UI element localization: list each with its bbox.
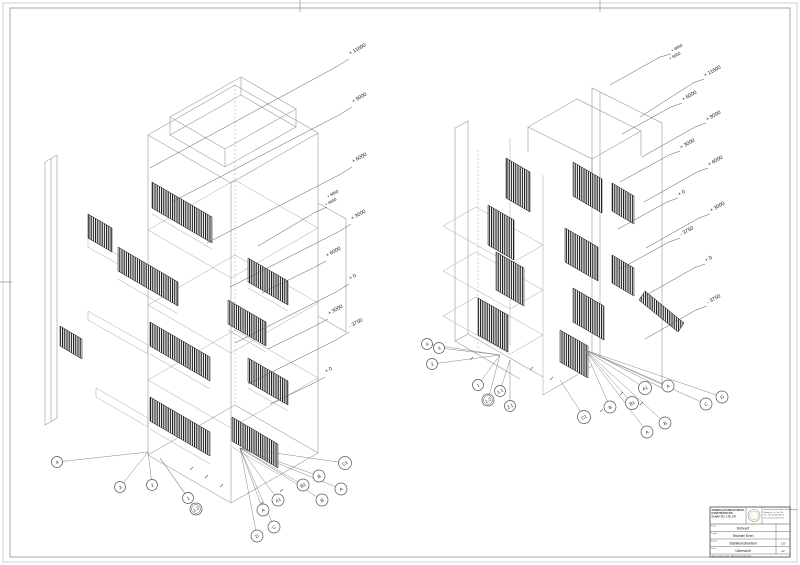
grid-bubble: B1 — [297, 479, 309, 491]
grid-bubble: C1 — [578, 411, 591, 424]
elevation-label: + 6000 — [325, 246, 342, 259]
grid-bubble: 1 — [473, 380, 484, 391]
cad-drawing-canvas: + 11600 + 9000 + 6000 + 8850 + 8650 + 30… — [0, 0, 800, 565]
elevation-label: + 11600 — [703, 64, 722, 78]
elevation-label: + 9000 — [351, 92, 368, 105]
title-row-label: Phase — [711, 526, 716, 528]
elevation-label: + 6000 — [681, 90, 698, 103]
stair-railing-panel — [565, 228, 598, 281]
sheet-border-inner — [10, 8, 790, 557]
grid-bubble: A — [257, 504, 269, 516]
elevation-label: + 9000 — [705, 110, 722, 123]
grid-bubble: A1 — [272, 494, 284, 506]
grid-bubble: D — [251, 530, 263, 542]
grid-bubble: B — [316, 494, 328, 506]
grid-bubble: 2 — [147, 480, 158, 491]
grid-bubble: 1 — [183, 493, 194, 504]
building-wireframe — [443, 88, 662, 395]
elevation-label: + 6000 — [351, 152, 368, 165]
elevation-label: + 0 — [348, 273, 357, 282]
grid-bubble: B — [313, 470, 325, 482]
grid-bubble: 1.2 — [190, 503, 202, 515]
contact-line: Sanayi ve Tic. Ltd. Şti. — [764, 511, 784, 514]
elevation-label: + 0 — [324, 366, 333, 375]
stair-railing-panel — [150, 397, 210, 456]
grid-bubble: 3 — [434, 343, 445, 354]
elevation-label: + 3000 — [327, 304, 344, 317]
title-row-label: Projekt — [711, 532, 717, 535]
stair-railing-panel — [560, 330, 588, 378]
grid-bubble: 1.2 — [482, 394, 494, 406]
stair-railing-panel — [60, 326, 82, 359]
scale-cell: 1:50 — [780, 542, 786, 546]
sheet-border-outer — [3, 3, 797, 562]
stair-railing-panel — [573, 288, 604, 340]
elevation-label: - 3750 — [706, 293, 722, 305]
contact-line: Generalüs İnşaat Metal Konstrüksiyon — [764, 508, 798, 511]
title-row-value: Tekinler Eren — [733, 534, 754, 538]
stair-railing-panel — [612, 255, 634, 296]
grid-bubble: B — [659, 417, 671, 429]
stair-railing-panels — [60, 182, 288, 468]
grid-bubbles: C1 B A B1 A1 B A C D 4 3 2 1 1.2 — [52, 457, 352, 543]
elevation-label: + 8650 — [324, 196, 338, 207]
logo-stamp-icon — [748, 510, 760, 522]
stair-railing-panel — [248, 258, 288, 305]
grid-bubble: C — [700, 398, 712, 410]
left-axonometric-view: + 11600 + 9000 + 6000 + 8850 + 8650 + 30… — [45, 42, 368, 542]
elevation-label: + 0 — [677, 189, 686, 198]
stair-railing-panel — [506, 158, 530, 212]
grid-bubble: C1 — [339, 457, 352, 470]
grid-bubble: 4 — [52, 457, 63, 468]
grid-bubble: 3 — [115, 482, 126, 493]
right-axonometric-view: + 8850 + 8650 + 11600 + 6000 + 9000 + 30… — [422, 42, 729, 438]
grid-bubble: B — [604, 401, 616, 413]
grid-bubble: D — [716, 391, 728, 403]
elevation-label: + 8650 — [668, 50, 682, 61]
grid-bubble: 2.1 — [505, 401, 516, 412]
elevation-label: - 3750 — [679, 225, 695, 237]
stair-railing-panel — [248, 358, 288, 405]
stair-railing-panel — [573, 162, 602, 213]
title-block: GENERALÜS İNŞAAT METAL KONSTRÜKSİYON SAN… — [710, 507, 797, 558]
grid-bubble: C — [268, 521, 280, 533]
stair-railing-panel — [150, 322, 210, 381]
stair-railing-panel — [88, 214, 112, 252]
contact-line: Tel. +90 212 000 00 00 — [764, 515, 785, 517]
title-row-value: Stahlkonstruktion — [729, 542, 757, 546]
contact-line: Fax +90 212 000 00 01 — [764, 517, 786, 519]
title-row-value: Übersicht — [735, 549, 750, 553]
drawing-sheet: + 11600 + 9000 + 6000 + 8850 + 8650 + 30… — [0, 0, 800, 565]
footer-note: Maße am Bau prüfen · Alle Rechte vorbeha… — [712, 555, 751, 558]
elevation-label: + 6000 — [707, 155, 724, 168]
elevation-label: + 0 — [704, 255, 713, 264]
stair-railing-panel — [478, 298, 508, 352]
grid-bubble: B1 — [626, 397, 639, 410]
elevation-label: - 3750 — [348, 317, 364, 329]
stair-railing-panel — [612, 183, 634, 224]
company-line: SANAYİ TİC. LTD. ŞTİ. — [712, 515, 737, 518]
stair-railing-panel — [496, 252, 524, 306]
sheet-size-cell: A2 — [781, 549, 785, 553]
grid-bubble: 1.1 — [495, 386, 506, 397]
grid-bubble: A — [662, 380, 674, 392]
grid-leaders — [57, 448, 345, 536]
grid-bubble: 4 — [422, 339, 433, 350]
stair-railing-panel — [639, 291, 684, 332]
grid-bubble: 2 — [427, 359, 438, 370]
title-row-label: Bauteil — [711, 540, 717, 543]
grid-bubble: A — [641, 426, 653, 438]
elevation-label: + 3000 — [679, 138, 696, 151]
title-row-value: Entwurf — [737, 527, 749, 531]
stair-railing-panels — [478, 158, 684, 378]
elevation-label: + 3000 — [350, 209, 367, 222]
title-row-label: Inhalt — [711, 547, 716, 550]
elevation-label: + 3000 — [709, 201, 726, 214]
grid-bubble: A — [335, 483, 347, 495]
contact-info: Generalüs İnşaat Metal Konstrüksiyon San… — [764, 508, 798, 519]
stair-railing-panel — [152, 182, 212, 243]
grid-bubble: A1 — [639, 382, 652, 395]
stair-railing-panel — [228, 300, 266, 346]
elevation-label: + 11600 — [348, 42, 367, 56]
